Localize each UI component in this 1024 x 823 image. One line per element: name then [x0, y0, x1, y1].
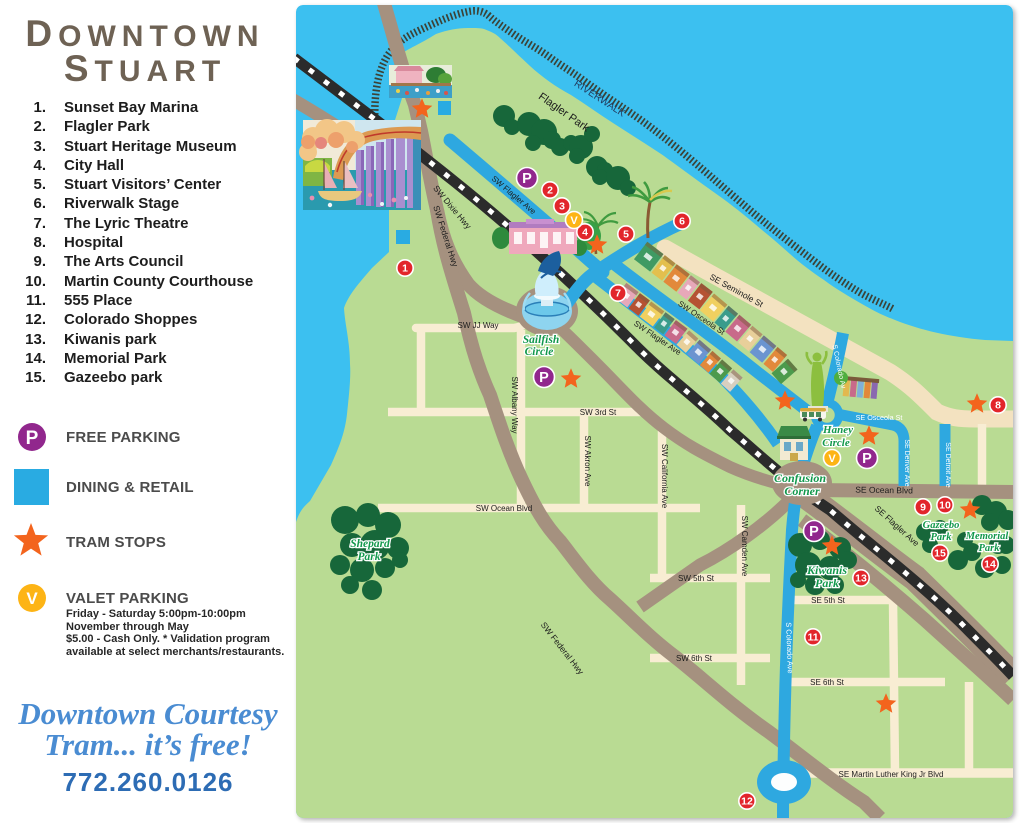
svg-text:Circle: Circle	[525, 346, 554, 358]
svg-text:2: 2	[547, 185, 553, 197]
svg-text:14: 14	[984, 559, 996, 571]
svg-text:SW California Ave: SW California Ave	[660, 444, 669, 509]
svg-text:P: P	[522, 171, 532, 187]
svg-text:Circle: Circle	[822, 437, 850, 449]
svg-text:Gazeebo: Gazeebo	[923, 520, 960, 531]
svg-text:5: 5	[623, 229, 629, 241]
svg-text:Confusion: Confusion	[774, 471, 826, 485]
svg-text:13: 13	[855, 573, 867, 585]
svg-text:V: V	[828, 453, 836, 465]
svg-text:Corner: Corner	[784, 484, 820, 498]
svg-text:1: 1	[402, 263, 408, 275]
svg-text:Shepard: Shepard	[350, 538, 390, 550]
svg-text:SE 5th St: SE 5th St	[811, 596, 846, 605]
svg-text:SE Denver Ave: SE Denver Ave	[903, 439, 910, 486]
svg-text:Park: Park	[931, 532, 953, 543]
svg-text:SE Detroit Ave: SE Detroit Ave	[944, 442, 951, 488]
svg-text:V: V	[26, 589, 38, 608]
svg-text:P: P	[862, 451, 872, 467]
svg-text:P: P	[809, 524, 819, 540]
svg-text:4: 4	[582, 227, 588, 239]
svg-text:12: 12	[741, 796, 753, 808]
svg-text:SW Akron Ave: SW Akron Ave	[583, 436, 592, 488]
svg-text:Memorial: Memorial	[965, 531, 1009, 542]
svg-text:SW 3rd St: SW 3rd St	[580, 408, 617, 417]
svg-text:Park: Park	[815, 576, 839, 590]
svg-text:SW JJ Way: SW JJ Way	[457, 321, 498, 330]
svg-text:SW Camden Ave: SW Camden Ave	[740, 516, 749, 577]
svg-text:Sailfish: Sailfish	[523, 334, 559, 346]
svg-text:9: 9	[920, 502, 926, 514]
svg-text:6: 6	[679, 216, 685, 228]
svg-text:P: P	[539, 370, 549, 386]
svg-text:P: P	[26, 428, 39, 449]
svg-text:11: 11	[807, 632, 818, 644]
svg-text:Park: Park	[358, 551, 381, 563]
svg-text:SE Osceola St: SE Osceola St	[856, 413, 903, 422]
svg-text:SW 5th St: SW 5th St	[678, 574, 715, 583]
svg-text:Haney: Haney	[822, 424, 853, 436]
svg-text:3: 3	[559, 201, 565, 213]
svg-text:SW 6th St: SW 6th St	[676, 654, 713, 663]
svg-text:SW Ocean Blvd: SW Ocean Blvd	[476, 504, 532, 513]
svg-text:8: 8	[995, 400, 1001, 412]
svg-text:SW Albany Way: SW Albany Way	[510, 376, 519, 433]
svg-text:S Colorado Ave: S Colorado Ave	[784, 622, 795, 674]
svg-text:SE Martin Luther King Jr Blvd: SE Martin Luther King Jr Blvd	[839, 770, 944, 779]
svg-text:Kiwanis: Kiwanis	[806, 563, 847, 577]
svg-text:10: 10	[939, 500, 951, 512]
svg-text:SE 6th St: SE 6th St	[810, 678, 845, 687]
svg-text:Park: Park	[979, 543, 1001, 554]
svg-text:V: V	[570, 215, 578, 227]
svg-text:7: 7	[615, 288, 621, 300]
svg-text:15: 15	[934, 548, 946, 560]
